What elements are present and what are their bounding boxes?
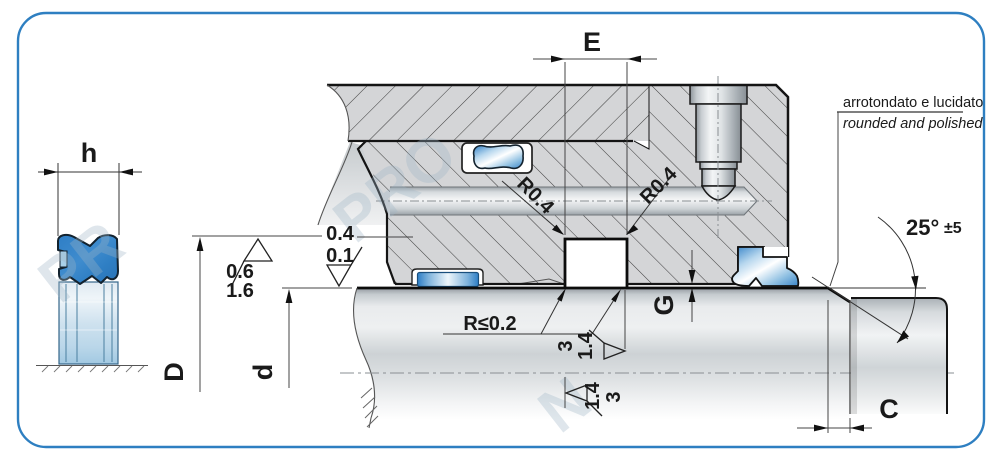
static-seal xyxy=(462,143,532,173)
label-angle: 25° xyxy=(906,215,939,240)
label-h: h xyxy=(81,138,98,168)
finish-shaft-upper-b: 1.4 xyxy=(575,331,597,360)
guide-strip xyxy=(412,269,483,287)
finish-groove-value-a: 0.4 xyxy=(326,223,355,245)
finish-shaft-lower-a: 1.4 xyxy=(582,381,604,410)
label-E: E xyxy=(583,27,601,57)
note-italian: arrotondato e lucidato xyxy=(843,95,983,111)
label-D: D xyxy=(159,362,189,382)
note-english: rounded and polished xyxy=(843,116,983,132)
finish-groove-value-b: 0.1 xyxy=(326,245,354,267)
finish-shaft-upper-a: 3 xyxy=(555,340,577,351)
label-G: G xyxy=(649,294,679,315)
technical-drawing: h xyxy=(0,0,1000,461)
label-radius-max: R≤0.2 xyxy=(463,313,516,335)
technical-drawing-page: h xyxy=(0,0,1000,461)
label-d: d xyxy=(248,364,278,381)
finish-shaft-lower-b: 3 xyxy=(603,391,625,402)
finish-bore-value-b: 1.6 xyxy=(226,280,254,302)
label-C: C xyxy=(879,394,899,424)
housing-upper-block xyxy=(327,85,649,141)
label-angle-tolerance: ±5 xyxy=(944,220,962,237)
